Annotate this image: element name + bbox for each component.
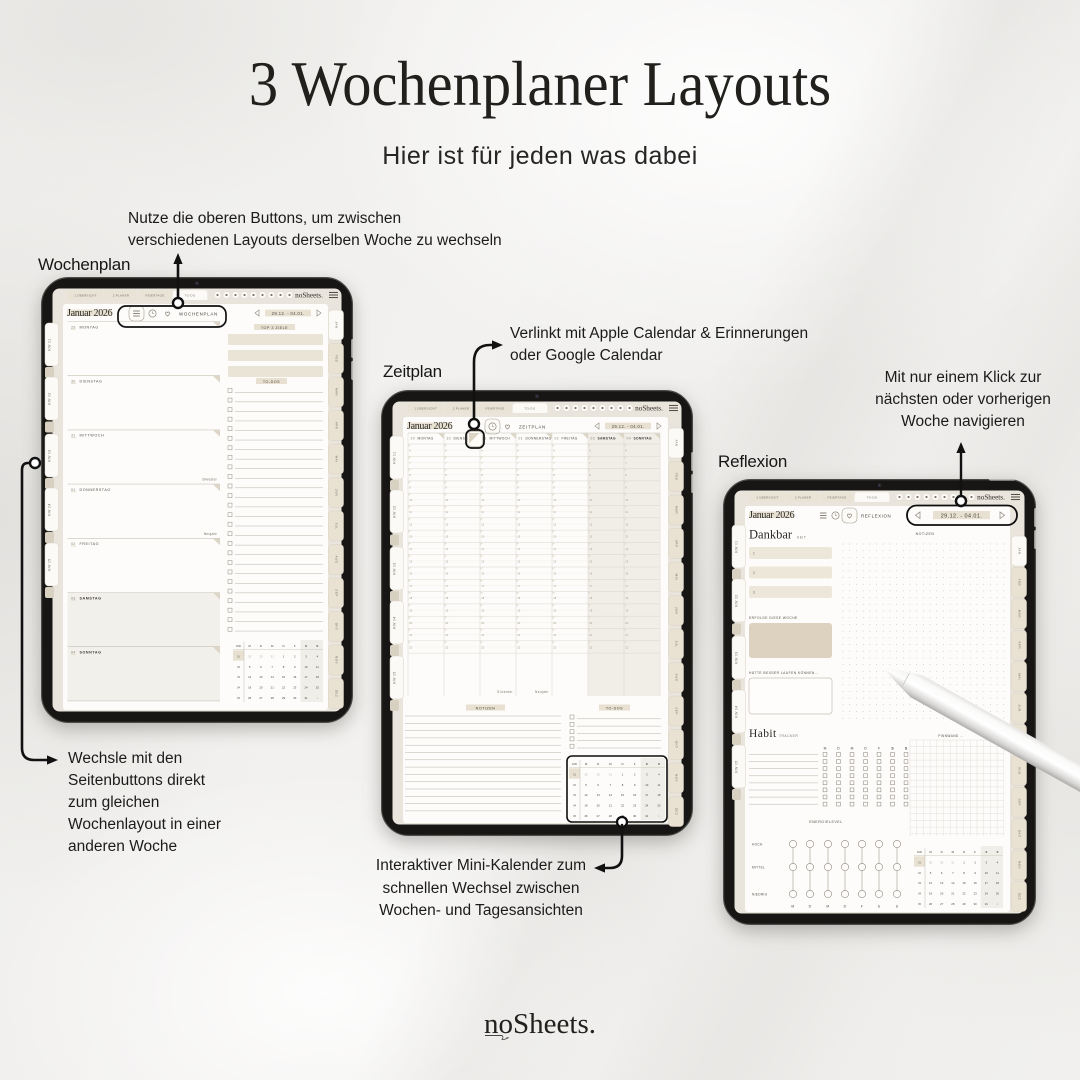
svg-text:01: 01: [237, 654, 241, 658]
svg-text:2.PLANER: 2.PLANER: [453, 407, 470, 411]
svg-text:TO-DOS: TO-DOS: [263, 380, 280, 384]
svg-text:15: 15: [621, 793, 625, 797]
svg-text:2.PLANER: 2.PLANER: [113, 294, 130, 298]
svg-text:APR: APR: [675, 540, 679, 548]
svg-text:D: D: [809, 905, 812, 909]
svg-text:29: 29: [71, 325, 76, 329]
svg-text:15: 15: [282, 675, 286, 679]
svg-text:18: 18: [996, 881, 1000, 885]
svg-text:04: 04: [573, 803, 577, 807]
svg-text:S: S: [658, 762, 660, 766]
svg-text:16: 16: [974, 881, 978, 885]
svg-text:APR: APR: [1018, 641, 1022, 649]
svg-text:27: 27: [940, 902, 944, 906]
svg-text:SONNTAG: SONNTAG: [634, 437, 652, 441]
svg-text:20: 20: [940, 891, 944, 895]
svg-text:KW 04: KW 04: [48, 503, 52, 515]
svg-text:02: 02: [237, 665, 241, 669]
svg-text:KW 05: KW 05: [393, 671, 397, 683]
svg-text:MITTWOCH: MITTWOCH: [490, 437, 511, 441]
svg-text:MAR: MAR: [1018, 610, 1022, 618]
svg-text:3: 3: [753, 591, 755, 595]
svg-text:F: F: [634, 762, 636, 766]
svg-text:F: F: [294, 644, 296, 648]
svg-text:DEZ: DEZ: [335, 690, 339, 697]
svg-text:11: 11: [657, 783, 660, 787]
svg-text:29: 29: [585, 772, 589, 776]
svg-text:23: 23: [633, 803, 637, 807]
svg-text:13: 13: [597, 793, 601, 797]
svg-text:29.12. - 04.01.: 29.12. - 04.01.: [612, 424, 645, 429]
svg-text:21: 21: [271, 685, 275, 689]
svg-text:29: 29: [411, 437, 415, 441]
svg-text:31: 31: [951, 860, 955, 864]
svg-text:Silvester: Silvester: [202, 478, 217, 482]
svg-text:FEB: FEB: [335, 355, 339, 362]
svg-text:12: 12: [585, 793, 589, 797]
svg-text:22: 22: [282, 685, 286, 689]
svg-text:KW 04: KW 04: [393, 616, 397, 628]
svg-text:FEIERTAGE: FEIERTAGE: [146, 294, 165, 298]
svg-text:M: M: [826, 905, 829, 909]
svg-text:JUL: JUL: [1018, 736, 1022, 743]
svg-text:03: 03: [71, 596, 76, 600]
svg-text:30: 30: [633, 814, 637, 818]
svg-text:22: 22: [962, 891, 966, 895]
svg-text:28: 28: [609, 814, 613, 818]
svg-text:Januar 2026: Januar 2026: [749, 510, 795, 521]
svg-text:KW 01: KW 01: [48, 338, 52, 350]
svg-text:13: 13: [940, 881, 944, 885]
svg-text:03: 03: [918, 881, 922, 885]
svg-text:ENERGIELEVEL: ENERGIELEVEL: [809, 820, 842, 824]
svg-text:M: M: [851, 747, 854, 751]
svg-text:TO-DO: TO-DO: [525, 407, 536, 411]
svg-text:PINNWAND ...: PINNWAND ...: [938, 734, 964, 738]
svg-text:TOP 3 ZIELE: TOP 3 ZIELE: [261, 326, 288, 330]
svg-text:AUG: AUG: [1018, 767, 1022, 775]
svg-text:Dankbar: Dankbar: [749, 528, 793, 542]
svg-text:FREITAG: FREITAG: [562, 437, 578, 441]
svg-text:17: 17: [305, 675, 309, 679]
svg-text:01: 01: [918, 860, 922, 864]
svg-text:SONNTAG: SONNTAG: [80, 651, 102, 655]
svg-text:noSheets.: noSheets.: [295, 292, 323, 300]
svg-text:AUG: AUG: [675, 674, 679, 682]
svg-text:MITTWOCH: MITTWOCH: [80, 434, 105, 438]
svg-text:Silvester: Silvester: [497, 690, 513, 694]
svg-text:30: 30: [71, 380, 76, 384]
svg-text:24: 24: [985, 891, 989, 895]
svg-text:21: 21: [609, 803, 613, 807]
svg-text:KW 02: KW 02: [735, 594, 739, 606]
svg-text:03: 03: [573, 793, 577, 797]
svg-text:DIENSTAG: DIENSTAG: [80, 380, 103, 384]
svg-text:WOCHENPLAN: WOCHENPLAN: [179, 312, 218, 317]
svg-text:10: 10: [985, 871, 989, 875]
svg-text:02: 02: [555, 437, 559, 441]
svg-text:26: 26: [248, 696, 252, 700]
svg-text:11: 11: [316, 665, 319, 669]
svg-text:NIEDRIG: NIEDRIG: [752, 893, 768, 897]
svg-text:31: 31: [71, 434, 76, 438]
svg-text:31: 31: [271, 654, 275, 658]
svg-text:15: 15: [962, 881, 966, 885]
svg-text:29: 29: [248, 654, 252, 658]
svg-text:S: S: [896, 905, 899, 909]
svg-text:D: D: [941, 850, 943, 854]
svg-text:Habit: Habit: [749, 728, 777, 740]
svg-text:27: 27: [259, 696, 263, 700]
svg-text:MONTAG: MONTAG: [80, 325, 99, 329]
svg-text:JAN: JAN: [335, 321, 339, 328]
svg-text:SEP: SEP: [335, 589, 339, 596]
svg-text:28: 28: [271, 696, 275, 700]
svg-text:29: 29: [929, 860, 933, 864]
svg-text:01: 01: [71, 488, 76, 492]
svg-text:KW 04: KW 04: [735, 705, 739, 717]
svg-text:TRACKER: TRACKER: [779, 734, 798, 738]
svg-text:HOCH: HOCH: [752, 843, 763, 847]
svg-text:NOTIZEN: NOTIZEN: [916, 532, 935, 536]
svg-text:13: 13: [259, 675, 263, 679]
svg-text:ZEITPLAN: ZEITPLAN: [519, 425, 546, 430]
svg-text:12: 12: [248, 675, 252, 679]
svg-text:M: M: [791, 905, 794, 909]
svg-text:KW 02: KW 02: [48, 392, 52, 404]
svg-text:31: 31: [305, 696, 309, 700]
svg-text:20: 20: [259, 685, 263, 689]
svg-text:29: 29: [962, 902, 966, 906]
svg-text:NOTIZEN: NOTIZEN: [476, 707, 496, 711]
svg-text:HÄTTE BESSER LAUFEN KÖNNEN...: HÄTTE BESSER LAUFEN KÖNNEN...: [749, 671, 819, 675]
svg-text:D: D: [963, 850, 965, 854]
svg-text:31: 31: [645, 814, 649, 818]
svg-text:30: 30: [974, 902, 978, 906]
svg-text:23: 23: [974, 891, 978, 895]
svg-text:JUN: JUN: [675, 607, 679, 614]
svg-text:NOV: NOV: [675, 774, 679, 782]
svg-text:22: 22: [621, 803, 625, 807]
svg-text:JAN: JAN: [675, 439, 679, 446]
svg-text:KW 01: KW 01: [393, 451, 397, 463]
svg-text:14: 14: [271, 675, 275, 679]
svg-text:1.ÜBERSICHT: 1.ÜBERSICHT: [756, 496, 779, 500]
svg-text:18: 18: [657, 793, 661, 797]
svg-text:F: F: [861, 905, 863, 909]
svg-text:OKT: OKT: [335, 623, 339, 631]
svg-text:FREITAG: FREITAG: [80, 542, 100, 546]
svg-text:NOV: NOV: [1018, 861, 1022, 869]
svg-text:FEB: FEB: [675, 473, 679, 480]
svg-text:TO-DO: TO-DO: [867, 496, 878, 500]
svg-text:14: 14: [951, 881, 955, 885]
svg-text:MAI: MAI: [335, 456, 339, 463]
svg-text:DONNERSTAG: DONNERSTAG: [80, 488, 111, 492]
svg-text:APR: APR: [335, 422, 339, 430]
svg-text:D: D: [260, 644, 262, 648]
svg-text:S: S: [985, 850, 987, 854]
svg-text:Neujahr: Neujahr: [204, 532, 218, 536]
svg-text:02: 02: [573, 783, 577, 787]
svg-text:KW 03: KW 03: [735, 651, 739, 663]
svg-text:18: 18: [316, 675, 320, 679]
svg-text:30: 30: [597, 772, 601, 776]
svg-text:S: S: [646, 762, 648, 766]
svg-text:24: 24: [305, 685, 309, 689]
svg-text:05: 05: [918, 902, 922, 906]
svg-text:2.PLANER: 2.PLANER: [795, 496, 812, 500]
svg-text:04: 04: [237, 685, 241, 689]
svg-text:05: 05: [237, 696, 241, 700]
svg-text:12: 12: [929, 881, 933, 885]
svg-text:FEB: FEB: [1018, 579, 1022, 586]
svg-text:11: 11: [996, 871, 999, 875]
svg-text:17: 17: [645, 793, 649, 797]
svg-text:MAI: MAI: [675, 574, 679, 581]
svg-text:KW: KW: [572, 762, 577, 766]
svg-text:19: 19: [929, 891, 933, 895]
svg-text:25: 25: [657, 803, 661, 807]
svg-text:30: 30: [447, 437, 451, 441]
svg-text:Januar 2026: Januar 2026: [407, 421, 453, 432]
svg-text:OKT: OKT: [675, 741, 679, 749]
svg-text:03: 03: [591, 437, 595, 441]
svg-text:MONTAG: MONTAG: [418, 437, 434, 441]
svg-text:02: 02: [71, 542, 76, 546]
svg-text:KW 03: KW 03: [48, 449, 52, 461]
svg-text:04: 04: [71, 651, 76, 655]
svg-text:30: 30: [259, 654, 263, 658]
svg-text:D: D: [597, 762, 599, 766]
svg-text:AUG: AUG: [335, 556, 339, 564]
svg-text:FEIERTAGE: FEIERTAGE: [486, 407, 505, 411]
svg-text:SEP: SEP: [675, 707, 679, 714]
svg-text:Neujahr: Neujahr: [535, 690, 550, 694]
svg-text:04: 04: [627, 437, 631, 441]
svg-text:S: S: [305, 644, 307, 648]
svg-text:01: 01: [519, 437, 523, 441]
svg-text:10: 10: [645, 783, 649, 787]
svg-text:TO-DO: TO-DO: [185, 294, 196, 298]
svg-text:JAN: JAN: [1018, 547, 1022, 554]
svg-text:25: 25: [316, 685, 320, 689]
svg-text:DEZ: DEZ: [1018, 893, 1022, 900]
svg-text:REFLEXION: REFLEXION: [861, 514, 891, 519]
svg-text:19: 19: [585, 803, 589, 807]
svg-text:KW 03: KW 03: [393, 562, 397, 574]
svg-text:29: 29: [282, 696, 286, 700]
svg-text:1.ÜBERSICHT: 1.ÜBERSICHT: [74, 294, 97, 298]
svg-text:26: 26: [585, 814, 589, 818]
svg-text:05: 05: [573, 814, 577, 818]
svg-text:02: 02: [918, 871, 922, 875]
svg-text:JUL: JUL: [335, 523, 339, 530]
svg-text:01: 01: [573, 772, 577, 776]
svg-text:MITTEL: MITTEL: [752, 866, 765, 870]
svg-text:KW 02: KW 02: [393, 505, 397, 517]
svg-text:KW 05: KW 05: [48, 558, 52, 570]
svg-text:Januar 2026: Januar 2026: [67, 308, 113, 319]
svg-text:23: 23: [293, 685, 297, 689]
svg-text:KW: KW: [236, 644, 241, 648]
svg-text:S: S: [878, 905, 881, 909]
svg-text:F: F: [878, 747, 880, 751]
svg-text:24: 24: [645, 803, 649, 807]
svg-text:KW 01: KW 01: [735, 540, 739, 552]
svg-text:JUN: JUN: [335, 489, 339, 496]
svg-text:04: 04: [918, 891, 922, 895]
svg-text:30: 30: [940, 860, 944, 864]
svg-text:31: 31: [985, 902, 989, 906]
svg-text:16: 16: [293, 675, 297, 679]
svg-text:14: 14: [609, 793, 613, 797]
svg-text:30: 30: [293, 696, 297, 700]
svg-text:D: D: [844, 905, 847, 909]
svg-text:F: F: [974, 850, 976, 854]
svg-text:JUN: JUN: [1018, 704, 1022, 711]
svg-text:noSheets.: noSheets.: [635, 405, 663, 413]
svg-text:TO-DOS: TO-DOS: [606, 707, 623, 711]
svg-text:FEIERTAGE: FEIERTAGE: [828, 496, 847, 500]
svg-text:MAR: MAR: [335, 388, 339, 396]
svg-text:KEIT: KEIT: [797, 536, 806, 540]
svg-text:KW 05: KW 05: [735, 760, 739, 772]
svg-text:noSheets.: noSheets.: [977, 494, 1005, 502]
svg-text:1.ÜBERSICHT: 1.ÜBERSICHT: [414, 407, 437, 411]
svg-text:17: 17: [985, 881, 989, 885]
svg-text:28: 28: [951, 902, 955, 906]
svg-text:03: 03: [237, 675, 241, 679]
svg-text:DONNERSTAG: DONNERSTAG: [526, 437, 552, 441]
svg-text:NOV: NOV: [335, 656, 339, 664]
svg-text:SAMSTAG: SAMSTAG: [80, 596, 102, 600]
svg-text:27: 27: [597, 814, 601, 818]
svg-text:29.12. - 04.01.: 29.12. - 04.01.: [272, 311, 305, 316]
svg-text:DEZ: DEZ: [675, 808, 679, 815]
svg-text:1: 1: [753, 552, 755, 556]
svg-text:16: 16: [633, 793, 637, 797]
svg-text:KW: KW: [917, 850, 922, 854]
svg-text:S: S: [996, 850, 998, 854]
svg-text:MAI: MAI: [1018, 673, 1022, 680]
svg-text:MAR: MAR: [675, 506, 679, 514]
svg-text:SAMSTAG: SAMSTAG: [598, 437, 616, 441]
svg-text:2: 2: [753, 571, 755, 575]
svg-text:21: 21: [951, 891, 955, 895]
svg-text:JUL: JUL: [675, 641, 679, 648]
svg-text:D: D: [621, 762, 623, 766]
svg-text:D: D: [282, 644, 284, 648]
svg-text:S: S: [316, 644, 318, 648]
svg-text:SEP: SEP: [1018, 799, 1022, 806]
svg-text:10: 10: [305, 665, 309, 669]
svg-text:ERFOLGE DIESE WOCHE: ERFOLGE DIESE WOCHE: [749, 616, 798, 620]
svg-text:29.12. - 04.01.: 29.12. - 04.01.: [941, 514, 983, 520]
svg-text:19: 19: [248, 685, 252, 689]
svg-text:26: 26: [929, 902, 933, 906]
svg-text:M: M: [824, 747, 827, 751]
svg-text:20: 20: [597, 803, 601, 807]
svg-text:OKT: OKT: [1018, 830, 1022, 838]
svg-text:25: 25: [996, 891, 1000, 895]
svg-text:31: 31: [609, 772, 613, 776]
